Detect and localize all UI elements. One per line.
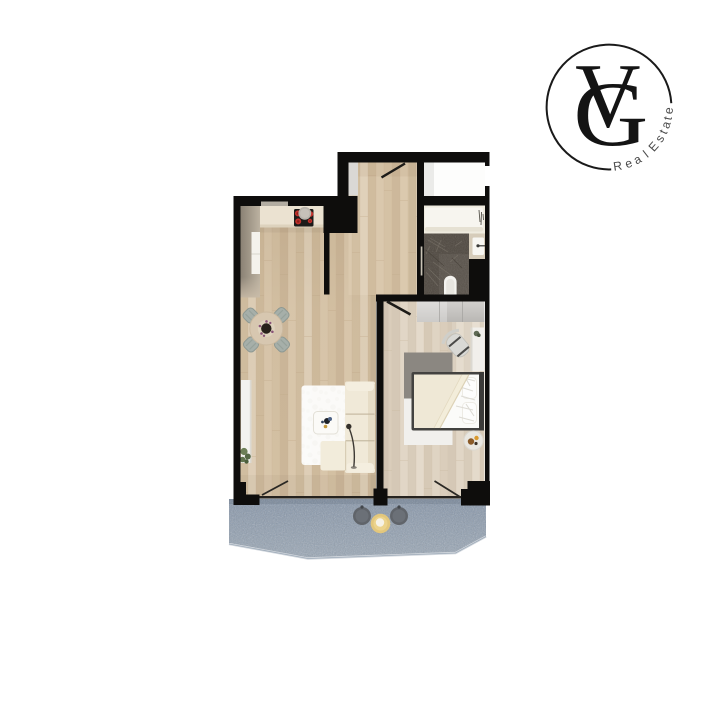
svg-text:G: G (573, 65, 648, 166)
svg-text:e: e (662, 107, 676, 115)
svg-text:t: t (661, 115, 676, 122)
